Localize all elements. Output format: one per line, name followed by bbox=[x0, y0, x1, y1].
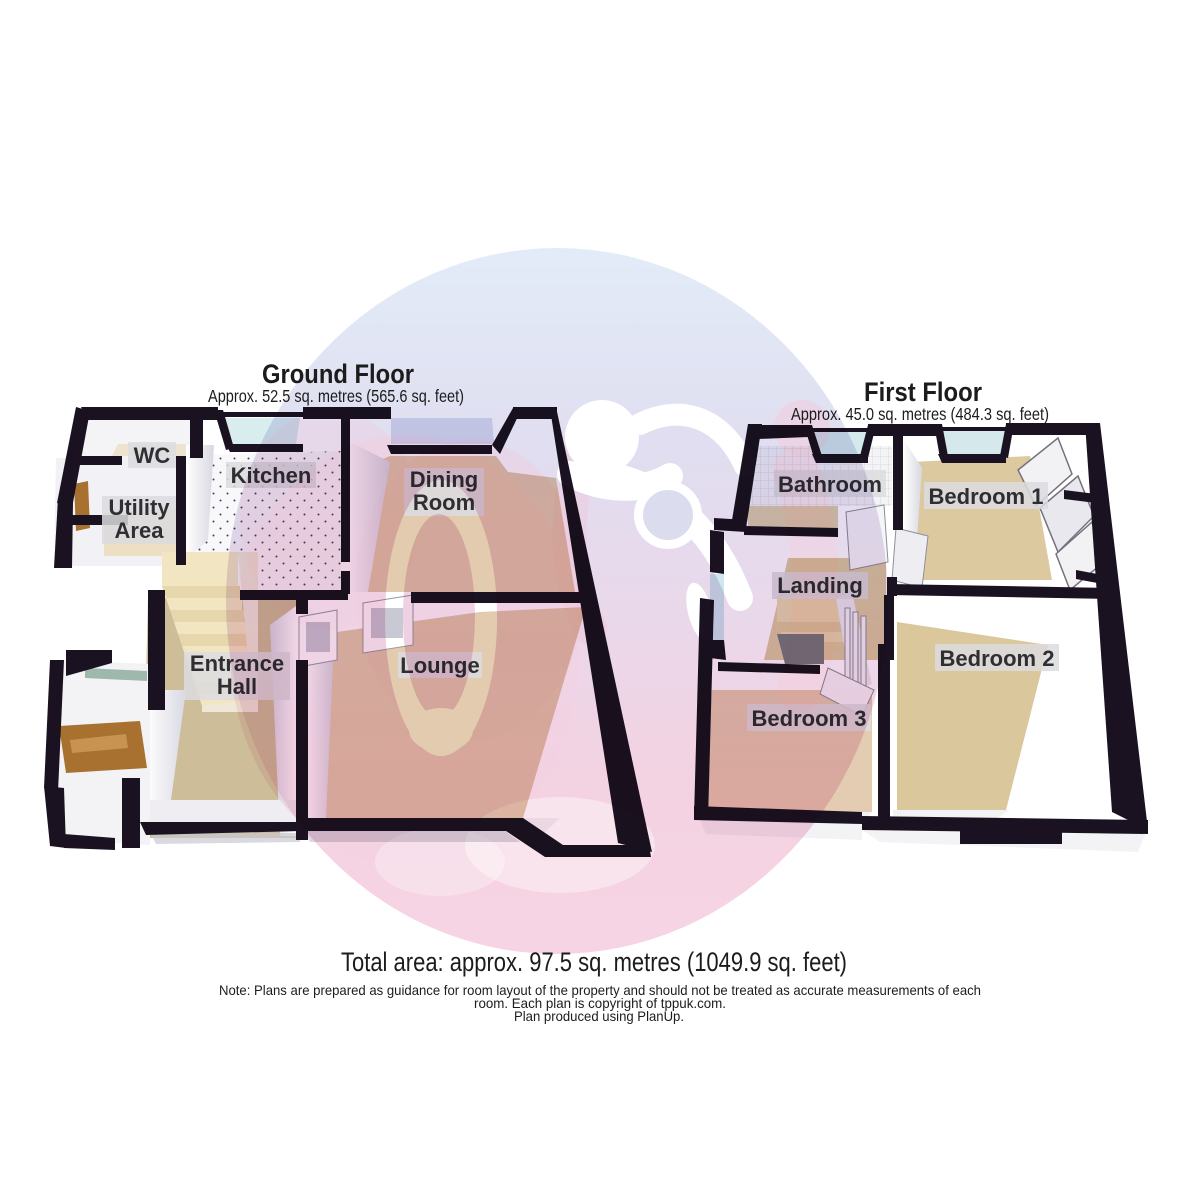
svg-text:Approx. 45.0 sq. metres (484.3: Approx. 45.0 sq. metres (484.3 sq. feet) bbox=[791, 404, 1049, 424]
svg-text:Plan produced using PlanUp.: Plan produced using PlanUp. bbox=[514, 1008, 684, 1024]
svg-text:Bedroom 2: Bedroom 2 bbox=[940, 646, 1055, 671]
svg-text:Area: Area bbox=[115, 518, 165, 543]
svg-text:Approx. 52.5 sq. metres (565.6: Approx. 52.5 sq. metres (565.6 sq. feet) bbox=[208, 386, 464, 406]
svg-text:Bedroom 1: Bedroom 1 bbox=[929, 484, 1044, 509]
svg-text:Utility: Utility bbox=[108, 495, 170, 520]
svg-text:Total area: approx. 97.5 sq. m: Total area: approx. 97.5 sq. metres (104… bbox=[341, 947, 847, 977]
svg-text:First Floor: First Floor bbox=[864, 377, 982, 407]
svg-text:WC: WC bbox=[134, 443, 171, 468]
svg-text:Ground Floor: Ground Floor bbox=[262, 359, 414, 389]
